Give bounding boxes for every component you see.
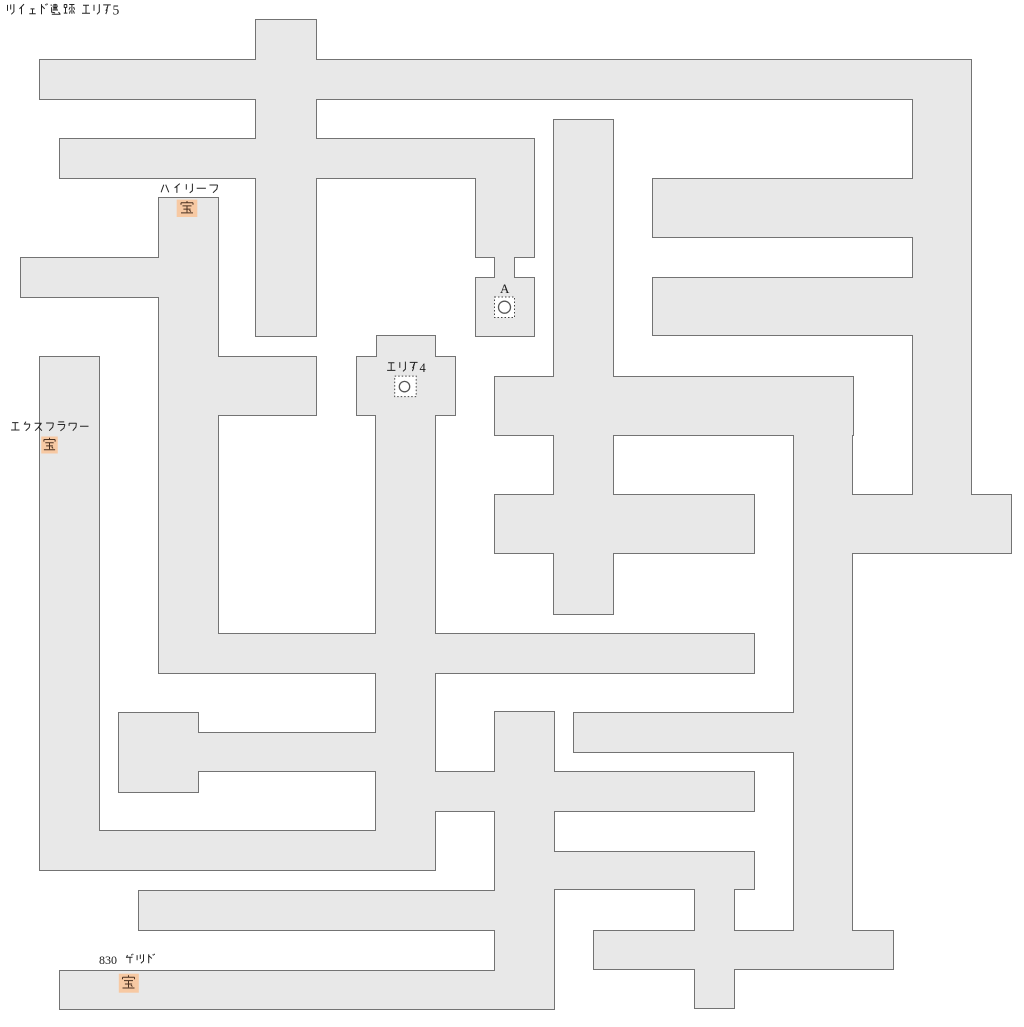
svg-text:830: 830 — [99, 953, 117, 967]
svg-text:5: 5 — [113, 3, 120, 18]
svg-text:A: A — [500, 281, 510, 296]
svg-text:4: 4 — [420, 361, 427, 375]
